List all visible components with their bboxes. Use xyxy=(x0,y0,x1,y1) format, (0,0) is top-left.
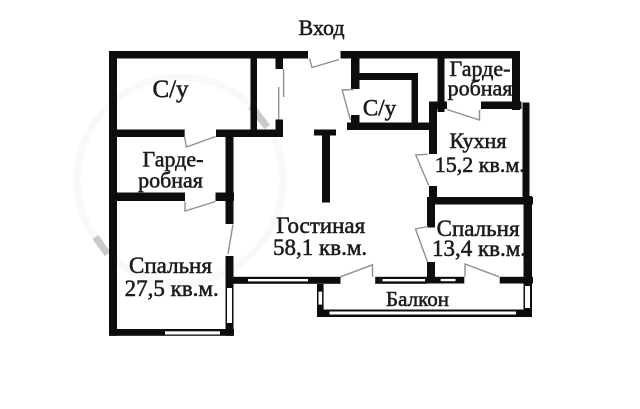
svg-text:Балкон: Балкон xyxy=(386,287,449,311)
svg-text:13,4 кв.м.: 13,4 кв.м. xyxy=(432,236,526,261)
svg-text:С/у: С/у xyxy=(152,76,189,103)
svg-text:Вход: Вход xyxy=(298,15,344,40)
svg-text:27,5 кв.м.: 27,5 кв.м. xyxy=(125,276,219,301)
svg-text:Спальня: Спальня xyxy=(129,253,212,278)
svg-text:С/у: С/у xyxy=(363,96,397,121)
svg-text:15,2 кв.м.: 15,2 кв.м. xyxy=(435,152,525,177)
svg-text:робная: робная xyxy=(448,76,513,101)
svg-text:58,1 кв.м.: 58,1 кв.м. xyxy=(273,235,367,260)
svg-text:Кухня: Кухня xyxy=(450,128,507,153)
svg-text:робная: робная xyxy=(138,167,203,192)
